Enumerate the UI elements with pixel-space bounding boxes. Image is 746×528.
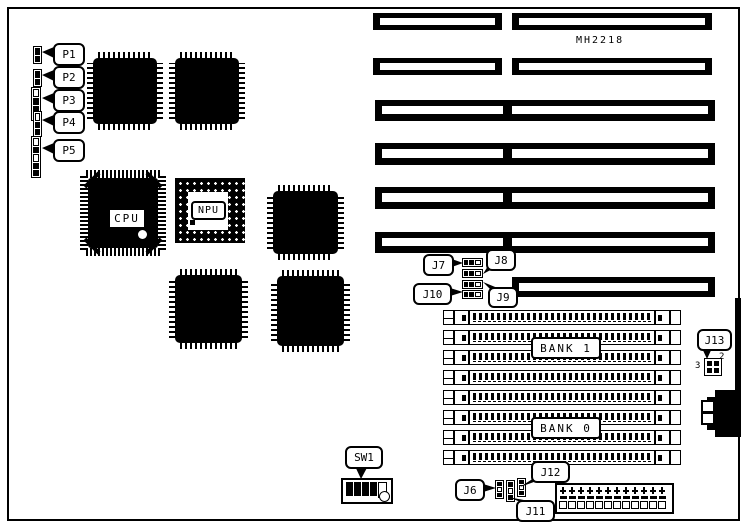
simm-latch-left bbox=[454, 430, 469, 445]
callout-p5: P5 bbox=[53, 139, 85, 162]
power-contact bbox=[605, 496, 612, 499]
power-hole bbox=[595, 501, 603, 509]
callout-p2: P2 bbox=[53, 66, 85, 89]
pin bbox=[475, 260, 481, 265]
simm-socket-4 bbox=[443, 370, 680, 385]
pin bbox=[497, 487, 502, 493]
simm-latch-right bbox=[655, 390, 670, 405]
simm-end-box bbox=[670, 370, 681, 385]
ic-chip-1 bbox=[87, 52, 163, 130]
motherboard-diagram: MH2218 CPU NPU BANK 1 BANK 0 3 2 bbox=[0, 0, 746, 528]
pin bbox=[508, 495, 513, 500]
slot-stripe bbox=[380, 18, 495, 25]
power-contact bbox=[587, 496, 594, 499]
callout-j8: J8 bbox=[486, 249, 516, 271]
jumper-j9-pins bbox=[462, 280, 483, 289]
callout-j11: J11 bbox=[516, 500, 555, 522]
simm-latch-right bbox=[655, 350, 670, 365]
isa-slot-2 bbox=[512, 13, 712, 30]
pin bbox=[519, 480, 524, 484]
jumper-j11-pins bbox=[506, 480, 515, 502]
jumper-j6-pins bbox=[495, 480, 504, 499]
power-pin bbox=[614, 487, 620, 494]
j13-pin2-number: 2 bbox=[719, 352, 724, 362]
callout-j10: J10 bbox=[413, 283, 452, 305]
cpu-chip: CPU bbox=[80, 170, 166, 256]
connector-p1-pins bbox=[33, 46, 42, 64]
jumper-j12-pins bbox=[517, 478, 526, 497]
callout-j9: J9 bbox=[488, 287, 518, 308]
power-hole bbox=[622, 501, 630, 509]
pin bbox=[35, 122, 40, 128]
cpu-body: CPU bbox=[88, 178, 158, 248]
isa-slot-7 bbox=[375, 187, 715, 209]
ic-pins-right bbox=[344, 281, 350, 341]
dip-cell bbox=[354, 482, 361, 496]
ic-pins-right bbox=[338, 196, 344, 249]
pin bbox=[33, 89, 39, 97]
simm-latch-left bbox=[454, 330, 469, 345]
power-pin bbox=[650, 487, 656, 494]
simm-latch-right bbox=[655, 450, 670, 465]
ic-pins-left bbox=[169, 280, 175, 338]
pin bbox=[519, 491, 524, 495]
callout-j12: J12 bbox=[531, 461, 570, 483]
dip-cell bbox=[346, 482, 353, 496]
ic-chip-4 bbox=[169, 269, 248, 349]
simm-latch-right bbox=[655, 430, 670, 445]
simm-contact-strip bbox=[469, 390, 655, 405]
power-contact bbox=[614, 496, 621, 499]
ic-chip-body bbox=[175, 58, 239, 124]
ic-chip-body bbox=[93, 58, 157, 124]
pin bbox=[469, 271, 473, 276]
simm-latch-right bbox=[655, 370, 670, 385]
simm-socket-1 bbox=[443, 310, 680, 325]
simm-latch-left bbox=[454, 450, 469, 465]
simm-latch-left bbox=[454, 350, 469, 365]
connector-p2-pins bbox=[33, 69, 42, 87]
simm-latch-left bbox=[454, 390, 469, 405]
simm-latch-left bbox=[454, 310, 469, 325]
power-pin bbox=[596, 487, 602, 494]
pin bbox=[464, 260, 468, 265]
slot-stripe bbox=[519, 63, 705, 70]
power-contact bbox=[659, 496, 666, 499]
slot-stripe bbox=[382, 106, 503, 114]
pin bbox=[35, 113, 40, 121]
board-edge-bar bbox=[735, 298, 741, 392]
jumper-j10-pins bbox=[462, 290, 483, 299]
isa-slot-9 bbox=[512, 277, 715, 297]
slot-stripe bbox=[382, 193, 503, 202]
bank1-label: BANK 1 bbox=[531, 337, 601, 359]
callout-p3: P3 bbox=[53, 89, 85, 112]
power-pin bbox=[641, 487, 647, 494]
power-hole bbox=[568, 501, 576, 509]
pin bbox=[497, 493, 502, 497]
cpu-label: CPU bbox=[110, 210, 144, 227]
simm-end-box bbox=[443, 350, 454, 365]
pin bbox=[475, 271, 481, 276]
pin bbox=[33, 147, 39, 153]
ic-pins-bottom bbox=[278, 254, 333, 260]
ic-pins-bottom bbox=[282, 346, 339, 352]
power-pin bbox=[605, 487, 611, 494]
pin bbox=[33, 163, 39, 169]
dip-cell bbox=[362, 482, 369, 496]
power-hole bbox=[649, 501, 657, 509]
pin bbox=[469, 282, 473, 287]
dip-detail-circle bbox=[379, 491, 390, 502]
power-hole bbox=[613, 501, 621, 509]
ic-chip-2 bbox=[169, 52, 245, 130]
pin bbox=[508, 488, 513, 495]
pin bbox=[469, 260, 473, 265]
power-connector bbox=[555, 483, 674, 514]
power-hole bbox=[586, 501, 594, 509]
board-label: MH2218 bbox=[576, 35, 646, 47]
callout-p4: P4 bbox=[53, 111, 85, 134]
cpu-pin1-dot bbox=[138, 230, 147, 239]
simm-end-box bbox=[443, 310, 454, 325]
simm-end-box bbox=[670, 350, 681, 365]
pin bbox=[464, 271, 468, 276]
simm-latch-right bbox=[655, 410, 670, 425]
pin bbox=[35, 71, 40, 78]
slot-stripe bbox=[512, 149, 708, 158]
power-hole bbox=[604, 501, 612, 509]
power-contact bbox=[560, 496, 567, 499]
power-pin bbox=[560, 487, 566, 494]
npu-label: NPU bbox=[191, 201, 226, 220]
callout-sw1: SW1 bbox=[345, 446, 383, 469]
ic-pins-left bbox=[87, 63, 93, 119]
isa-slot-5 bbox=[375, 100, 715, 121]
npu-body: NPU bbox=[188, 192, 228, 230]
ic-pins-right bbox=[157, 63, 163, 119]
pin bbox=[33, 170, 39, 176]
power-contact bbox=[623, 496, 630, 499]
power-pin bbox=[587, 487, 593, 494]
callout-p1: P1 bbox=[53, 43, 85, 66]
power-hole bbox=[631, 501, 639, 509]
pin bbox=[469, 292, 473, 297]
power-pin bbox=[623, 487, 629, 494]
power-contact bbox=[632, 496, 639, 499]
pin bbox=[464, 282, 468, 287]
slot-stripe bbox=[382, 238, 503, 246]
bank0-label: BANK 0 bbox=[531, 417, 601, 439]
simm-contact-strip bbox=[469, 310, 655, 325]
simm-latch-left bbox=[454, 370, 469, 385]
ic-pins-bottom bbox=[180, 124, 234, 130]
power-hole bbox=[559, 501, 567, 509]
pin bbox=[508, 482, 513, 487]
simm-end-box bbox=[443, 330, 454, 345]
ic-chip-body bbox=[175, 275, 242, 343]
npu-pin1-mark bbox=[190, 220, 195, 225]
connector-p4-pins bbox=[33, 111, 42, 137]
simm-end-box bbox=[670, 410, 681, 425]
isa-slot-3 bbox=[373, 58, 502, 75]
power-contact bbox=[578, 496, 585, 499]
power-pin bbox=[578, 487, 584, 494]
power-pin bbox=[569, 487, 575, 494]
ic-pins-top bbox=[282, 270, 339, 276]
simm-end-box bbox=[443, 450, 454, 465]
pin bbox=[475, 282, 481, 287]
ic-pins-top bbox=[180, 52, 234, 58]
power-pin bbox=[632, 487, 638, 494]
npu-chip: NPU bbox=[175, 178, 245, 243]
simm-contact-strip bbox=[469, 370, 655, 385]
jumper-j7-pins bbox=[462, 258, 483, 267]
pin bbox=[35, 79, 40, 86]
ic-pins-left bbox=[169, 63, 175, 119]
simm-end-box bbox=[670, 310, 681, 325]
callout-j13: J13 bbox=[697, 329, 732, 351]
simm-end-box bbox=[443, 410, 454, 425]
slot-stripe bbox=[519, 283, 708, 291]
pin bbox=[33, 138, 39, 146]
isa-slot-4 bbox=[512, 58, 712, 75]
ic-chip-5 bbox=[271, 270, 350, 352]
pin bbox=[475, 292, 481, 297]
ic-pins-left bbox=[271, 281, 277, 341]
ic-pins-bottom bbox=[98, 124, 152, 130]
pin bbox=[519, 485, 524, 491]
pin bbox=[35, 56, 40, 63]
simm-end-box bbox=[443, 390, 454, 405]
ic-chip-body bbox=[273, 191, 338, 254]
ic-pins-top bbox=[98, 52, 152, 58]
ic-pins-top bbox=[180, 269, 237, 275]
pin bbox=[33, 98, 39, 104]
pin bbox=[35, 48, 40, 55]
ic-pins-left bbox=[267, 196, 273, 249]
ic-pins-right bbox=[239, 63, 245, 119]
power-contact bbox=[596, 496, 603, 499]
isa-slot-6 bbox=[375, 143, 715, 165]
simm-end-box bbox=[443, 430, 454, 445]
pin bbox=[33, 154, 39, 162]
power-contact bbox=[641, 496, 648, 499]
j13-pin3-number: 3 bbox=[695, 361, 700, 371]
dip-cell bbox=[370, 482, 377, 496]
ic-pins-right bbox=[242, 280, 248, 338]
power-pin bbox=[659, 487, 665, 494]
simm-end-box bbox=[670, 390, 681, 405]
callout-j7: J7 bbox=[423, 254, 454, 276]
simm-end-box bbox=[443, 370, 454, 385]
pin bbox=[497, 482, 502, 486]
pin bbox=[464, 292, 468, 297]
ic-chip-3 bbox=[267, 185, 344, 260]
slot-stripe bbox=[382, 149, 503, 158]
ic-chip-body bbox=[277, 276, 344, 346]
dip-switch-sw1 bbox=[341, 478, 393, 504]
simm-socket-5 bbox=[443, 390, 680, 405]
simm-end-box bbox=[670, 330, 681, 345]
power-hole bbox=[658, 501, 666, 509]
isa-slot-1 bbox=[373, 13, 502, 30]
connector-p5-pins bbox=[31, 136, 41, 178]
power-contact bbox=[650, 496, 657, 499]
simm-latch-right bbox=[655, 330, 670, 345]
ic-pins-bottom bbox=[180, 343, 237, 349]
simm-latch-right bbox=[655, 310, 670, 325]
pin bbox=[35, 129, 40, 135]
slot-stripe bbox=[512, 193, 708, 202]
ic-pins-top bbox=[278, 185, 333, 191]
slot-stripe bbox=[519, 18, 705, 25]
keyboard-connector-pin bbox=[701, 412, 715, 425]
power-hole bbox=[640, 501, 648, 509]
slot-stripe bbox=[512, 106, 708, 114]
power-hole bbox=[577, 501, 585, 509]
power-contact bbox=[569, 496, 576, 499]
callout-j6: J6 bbox=[455, 479, 485, 501]
jumper-j8-pins bbox=[462, 269, 483, 278]
simm-end-box bbox=[670, 430, 681, 445]
slot-stripe bbox=[512, 238, 708, 246]
slot-stripe bbox=[380, 63, 495, 70]
isa-slot-8 bbox=[375, 232, 715, 253]
simm-latch-left bbox=[454, 410, 469, 425]
simm-end-box bbox=[670, 450, 681, 465]
